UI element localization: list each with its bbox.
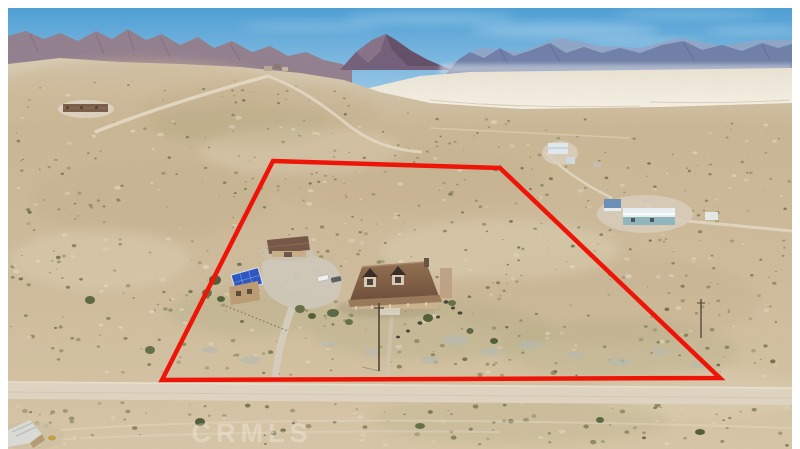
- aerial-photo: CRMLS: [0, 0, 800, 449]
- trailer: [705, 212, 718, 220]
- front-patio: [380, 308, 400, 315]
- chimney: [424, 258, 429, 267]
- watermark-text: CRMLS: [192, 418, 313, 448]
- ranch-house-distant: [58, 100, 114, 118]
- stone-annex: [440, 268, 452, 298]
